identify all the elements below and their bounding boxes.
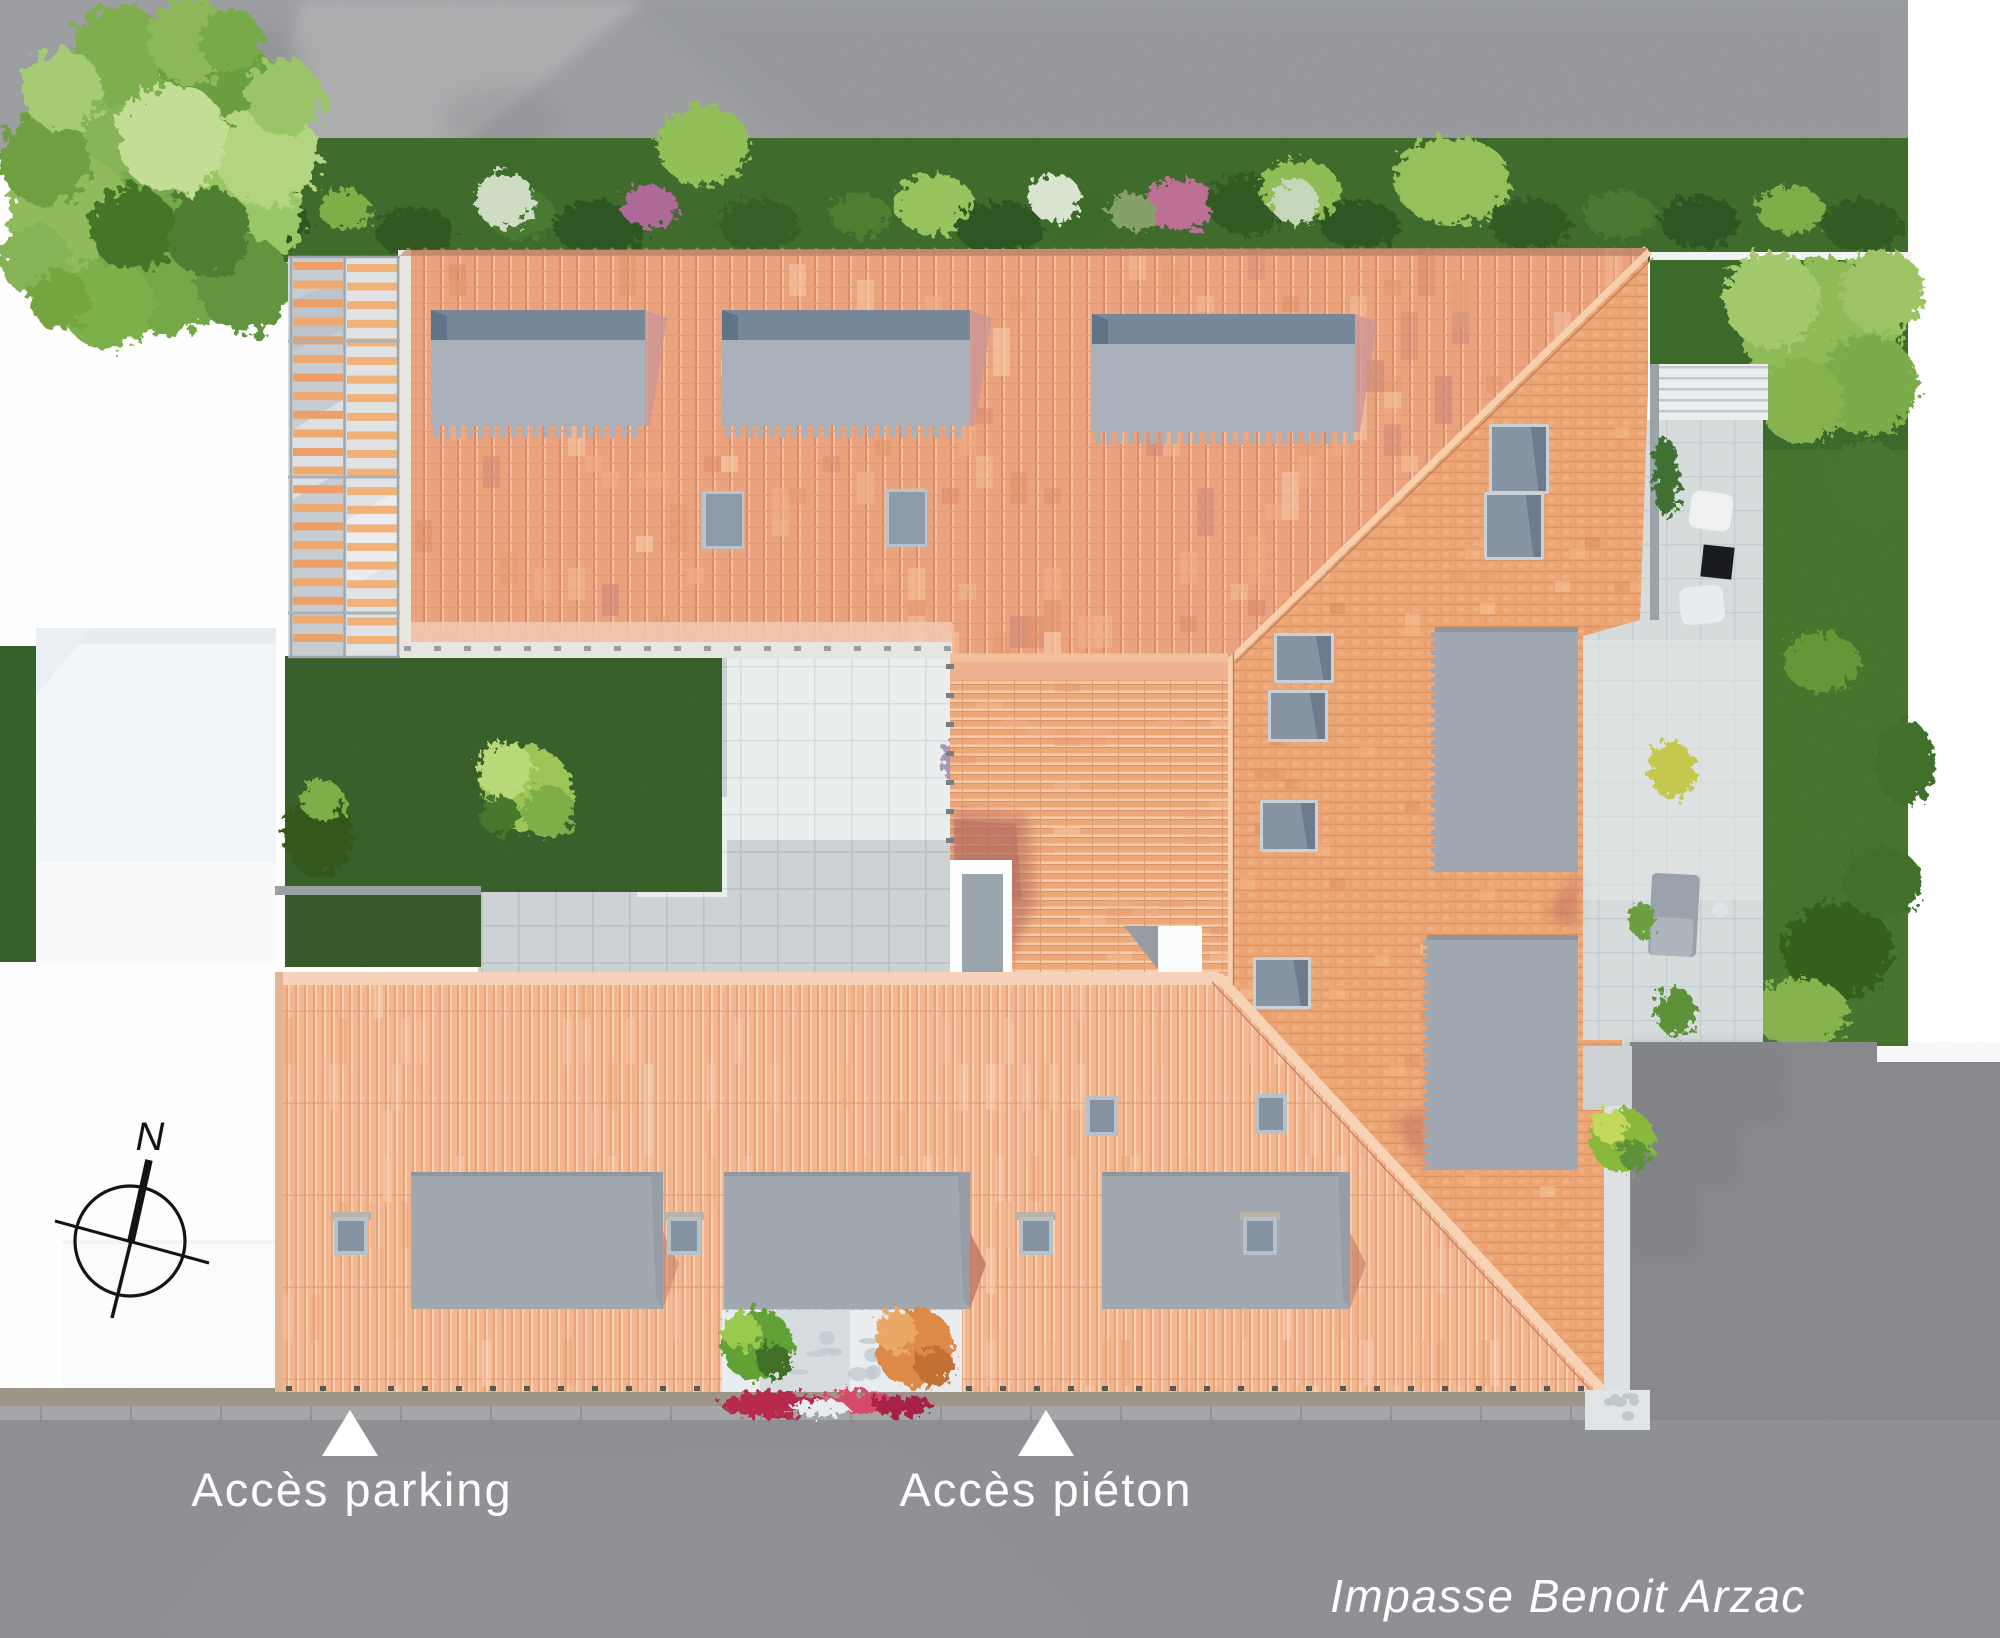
svg-text:N: N bbox=[136, 1115, 165, 1159]
svg-text:Accès piéton: Accès piéton bbox=[899, 1463, 1192, 1516]
svg-text:Accès parking: Accès parking bbox=[191, 1463, 512, 1516]
svg-text:Impasse Benoit Arzac: Impasse Benoit Arzac bbox=[1330, 1570, 1806, 1622]
